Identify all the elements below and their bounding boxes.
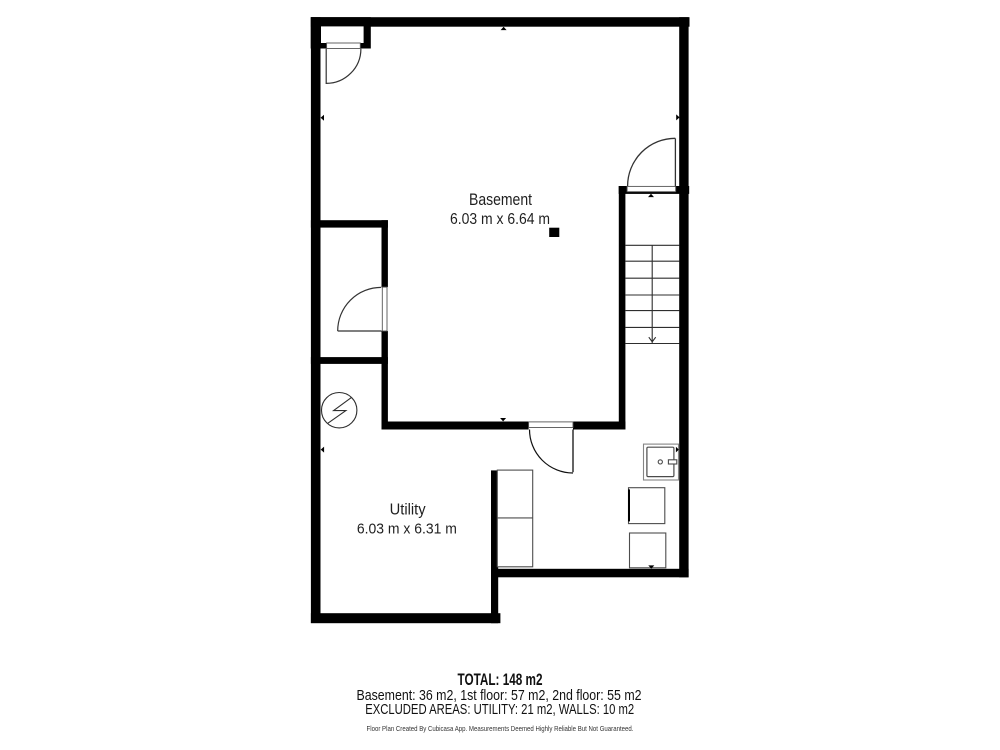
svg-text:EXCLUDED AREAS: UTILITY: 21 m2: EXCLUDED AREAS: UTILITY: 21 m2, WALLS: 1… [365, 701, 634, 718]
svg-text:6.03 m x 6.64 m: 6.03 m x 6.64 m [450, 211, 550, 228]
svg-text:Utility: Utility [390, 502, 426, 519]
svg-text:6.03 m x 6.31 m: 6.03 m x 6.31 m [357, 521, 457, 538]
svg-text:Basement: Basement [469, 191, 532, 209]
svg-text:Floor Plan Created By Cubicasa: Floor Plan Created By Cubicasa App. Meas… [367, 724, 634, 733]
